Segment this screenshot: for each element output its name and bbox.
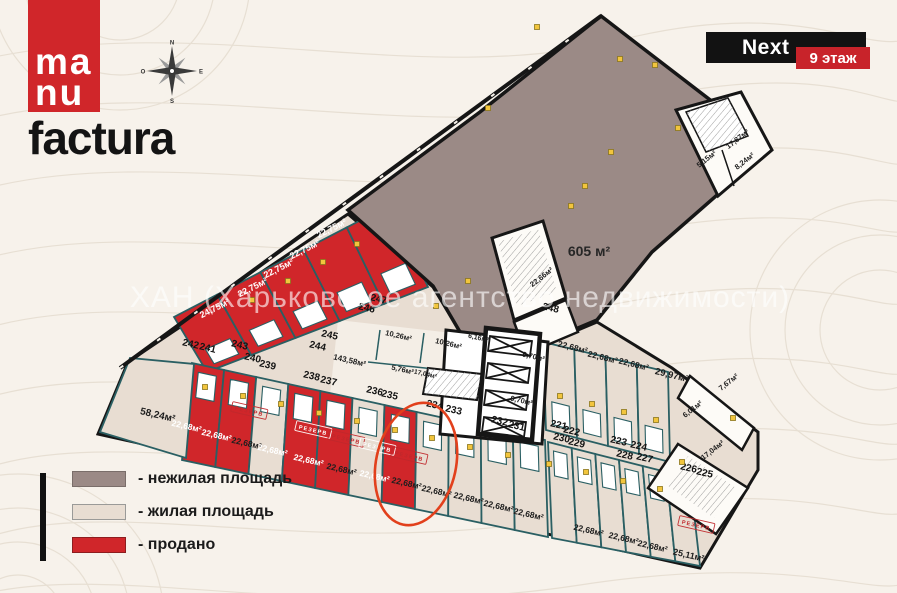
legend-swatch-nonresidential — [72, 471, 126, 487]
legend-swatch-residential — [72, 504, 126, 520]
logo-red-block: ma nu — [28, 0, 100, 112]
door-marker — [321, 260, 326, 265]
legend-item-sold: - продано — [72, 537, 292, 553]
bathroom-pod — [601, 463, 616, 490]
door-marker — [622, 410, 627, 415]
bathroom-pod — [520, 442, 539, 471]
door-marker — [680, 460, 685, 465]
door-marker — [486, 106, 491, 111]
bathroom-pod — [583, 410, 601, 438]
door-marker — [468, 445, 473, 450]
compass-center — [170, 69, 175, 74]
logo-word: factura — [28, 115, 174, 161]
door-marker — [355, 242, 360, 247]
door-marker — [590, 402, 595, 407]
bathroom-pod — [625, 469, 640, 496]
compass-north-label: N — [170, 41, 174, 47]
compass-east-label: E — [199, 70, 203, 76]
bathroom-pod — [358, 407, 377, 436]
door-marker — [658, 487, 663, 492]
door-marker — [621, 479, 626, 484]
compass-west-label: O — [141, 70, 146, 76]
floorplan-page: 22,75м²22,75м²22,75м²22,75м²24,75м²58,24… — [0, 0, 897, 593]
logo-line-nu: nu — [35, 77, 100, 108]
legend-label-sold: - продано — [138, 536, 215, 554]
door-marker — [317, 411, 322, 416]
bathroom-pod — [326, 400, 345, 429]
door-marker — [279, 402, 284, 407]
bathroom-pod — [554, 451, 569, 479]
watermark: ХАН (Харьковское агентство недвижимости) — [130, 281, 790, 314]
door-marker — [393, 428, 398, 433]
door-marker — [558, 394, 563, 399]
legend-label-nonresidential: - нежилая площадь — [138, 470, 292, 488]
compass-rose: N E S O — [139, 38, 205, 104]
total-area-label: 605 м² — [568, 243, 611, 259]
door-marker — [653, 63, 658, 68]
door-marker — [618, 57, 623, 62]
bathroom-pod — [645, 425, 663, 453]
bathroom-pod — [261, 386, 281, 415]
legend-item-nonresidential: - нежилая площадь — [72, 471, 292, 487]
legend-item-residential: - жилая площадь — [72, 504, 292, 520]
legend-label-residential: - жилая площадь — [138, 503, 274, 521]
door-marker — [430, 436, 435, 441]
door-marker — [535, 25, 540, 30]
door-marker — [654, 418, 659, 423]
door-marker — [569, 204, 574, 209]
door-marker — [584, 470, 589, 475]
bathroom-pod — [293, 393, 313, 422]
legend-bar — [40, 473, 46, 561]
door-marker — [203, 385, 208, 390]
door-marker — [506, 453, 511, 458]
door-marker — [241, 394, 246, 399]
compass-south-label: S — [170, 99, 174, 104]
floor-badge: 9 этаж — [796, 47, 870, 69]
door-marker — [547, 462, 552, 467]
door-marker — [355, 419, 360, 424]
area-label: 7,67м² — [717, 371, 741, 392]
legend: - нежилая площадь - жилая площадь - прод… — [40, 471, 292, 570]
legend-swatch-sold — [72, 537, 126, 553]
door-marker — [583, 184, 588, 189]
door-marker — [609, 150, 614, 155]
door-marker — [731, 416, 736, 421]
door-marker — [676, 126, 681, 131]
